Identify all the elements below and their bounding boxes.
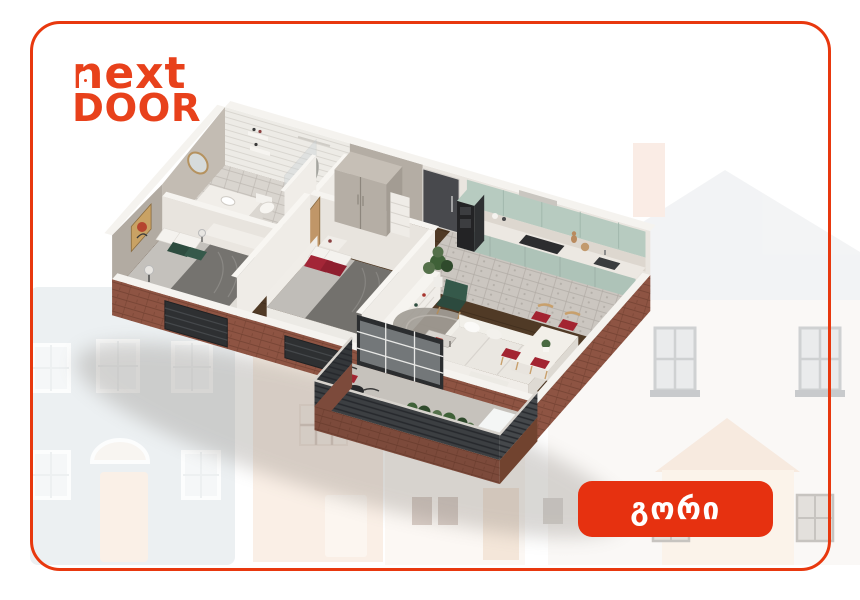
- dog-figurine: [571, 231, 577, 243]
- window-icon: [650, 328, 700, 397]
- promo-image: next DOOR გორი: [0, 0, 860, 600]
- kettle: [492, 213, 498, 219]
- oven-column: [457, 190, 484, 252]
- location-badge-label: გორი: [630, 492, 721, 527]
- hall-shelf: [390, 192, 409, 238]
- window-icon: [795, 328, 845, 397]
- brand-logo: next DOOR: [72, 56, 201, 125]
- cutting-board: [581, 243, 589, 251]
- door-cutout-icon: [79, 71, 88, 88]
- location-badge[interactable]: გორი: [578, 481, 773, 537]
- logo-word-door: DOOR: [72, 93, 201, 125]
- jar: [502, 217, 506, 221]
